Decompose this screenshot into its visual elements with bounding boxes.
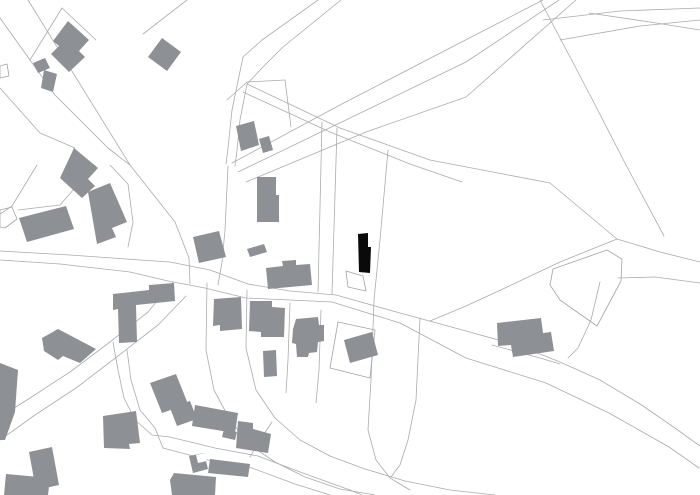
site-plan-page — [0, 0, 700, 495]
context-building-29 — [263, 350, 277, 377]
context-building-10 — [257, 177, 279, 222]
context-building-16 — [103, 411, 140, 449]
site-plan-map — [0, 0, 700, 495]
